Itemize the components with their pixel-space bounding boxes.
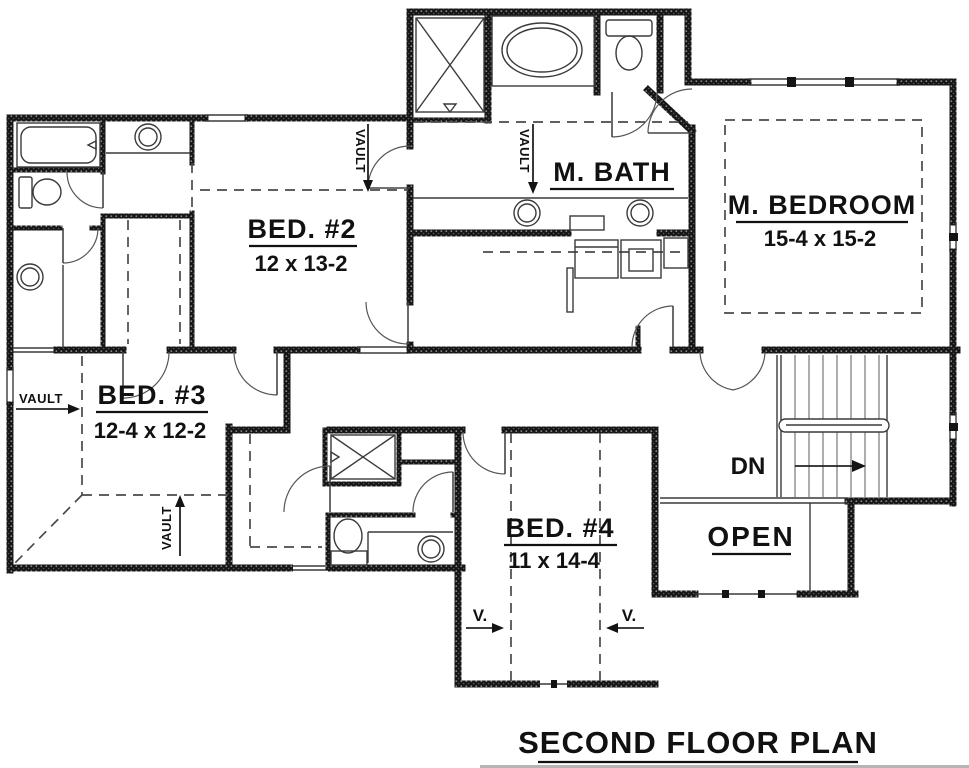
hall-tub-icon <box>17 123 100 167</box>
open-below-label: OPEN <box>707 521 794 552</box>
vault-label-bed2: VAULT <box>353 129 368 173</box>
master-tub-icon <box>492 16 595 86</box>
bath2-sink-icon <box>368 532 453 563</box>
bath2-shower-icon <box>331 435 395 479</box>
vault-short-label-right: V. <box>622 606 637 625</box>
hall-vanity-sink-icon <box>106 124 190 153</box>
exterior-and-interior-walls <box>7 12 958 690</box>
bed4-dims: 11 x 14-4 <box>508 548 601 573</box>
bed3-label: BED. #3 <box>97 380 206 410</box>
vault-label-bed3-left: VAULT <box>19 391 63 406</box>
bed2-label: BED. #2 <box>247 214 356 244</box>
master-bedroom-label: M. BEDROOM <box>728 190 917 220</box>
staircase <box>777 355 889 497</box>
bed4-label: BED. #4 <box>505 513 614 543</box>
vault-label-bed3-bottom: VAULT <box>159 506 174 550</box>
hall-toilet-icon <box>19 177 61 208</box>
bed3-dims: 12-4 x 12-2 <box>94 418 207 443</box>
master-shower-icon <box>416 18 484 112</box>
master-bath-label: M. BATH <box>553 157 670 187</box>
vault-short-label-left: V. <box>473 606 488 625</box>
sheet-title: SECOND FLOOR PLAN <box>480 725 969 767</box>
floor-plan-drawing: BED. #2 12 x 13-2 BED. #3 12-4 x 12-2 BE… <box>0 0 969 768</box>
plan-title: SECOND FLOOR PLAN <box>518 725 878 760</box>
room-labels: BED. #2 12 x 13-2 BED. #3 12-4 x 12-2 BE… <box>94 157 917 573</box>
bed2-dims: 12 x 13-2 <box>255 251 348 276</box>
master-bedroom-dims: 15-4 x 15-2 <box>764 226 877 251</box>
master-vanity-sinks-icon <box>514 200 653 230</box>
down-direction-arrow <box>795 460 866 472</box>
bath2-toilet-icon <box>331 519 367 565</box>
vault-label-master-bath: VAULT <box>517 129 532 173</box>
hall-cabinets-icon <box>567 238 688 312</box>
master-toilet-icon <box>606 20 652 70</box>
floor-plan-sheet: BED. #2 12 x 13-2 BED. #3 12-4 x 12-2 BE… <box>0 0 969 768</box>
stairs-down-label: DN <box>731 453 766 480</box>
utility-sink-icon <box>17 264 63 348</box>
